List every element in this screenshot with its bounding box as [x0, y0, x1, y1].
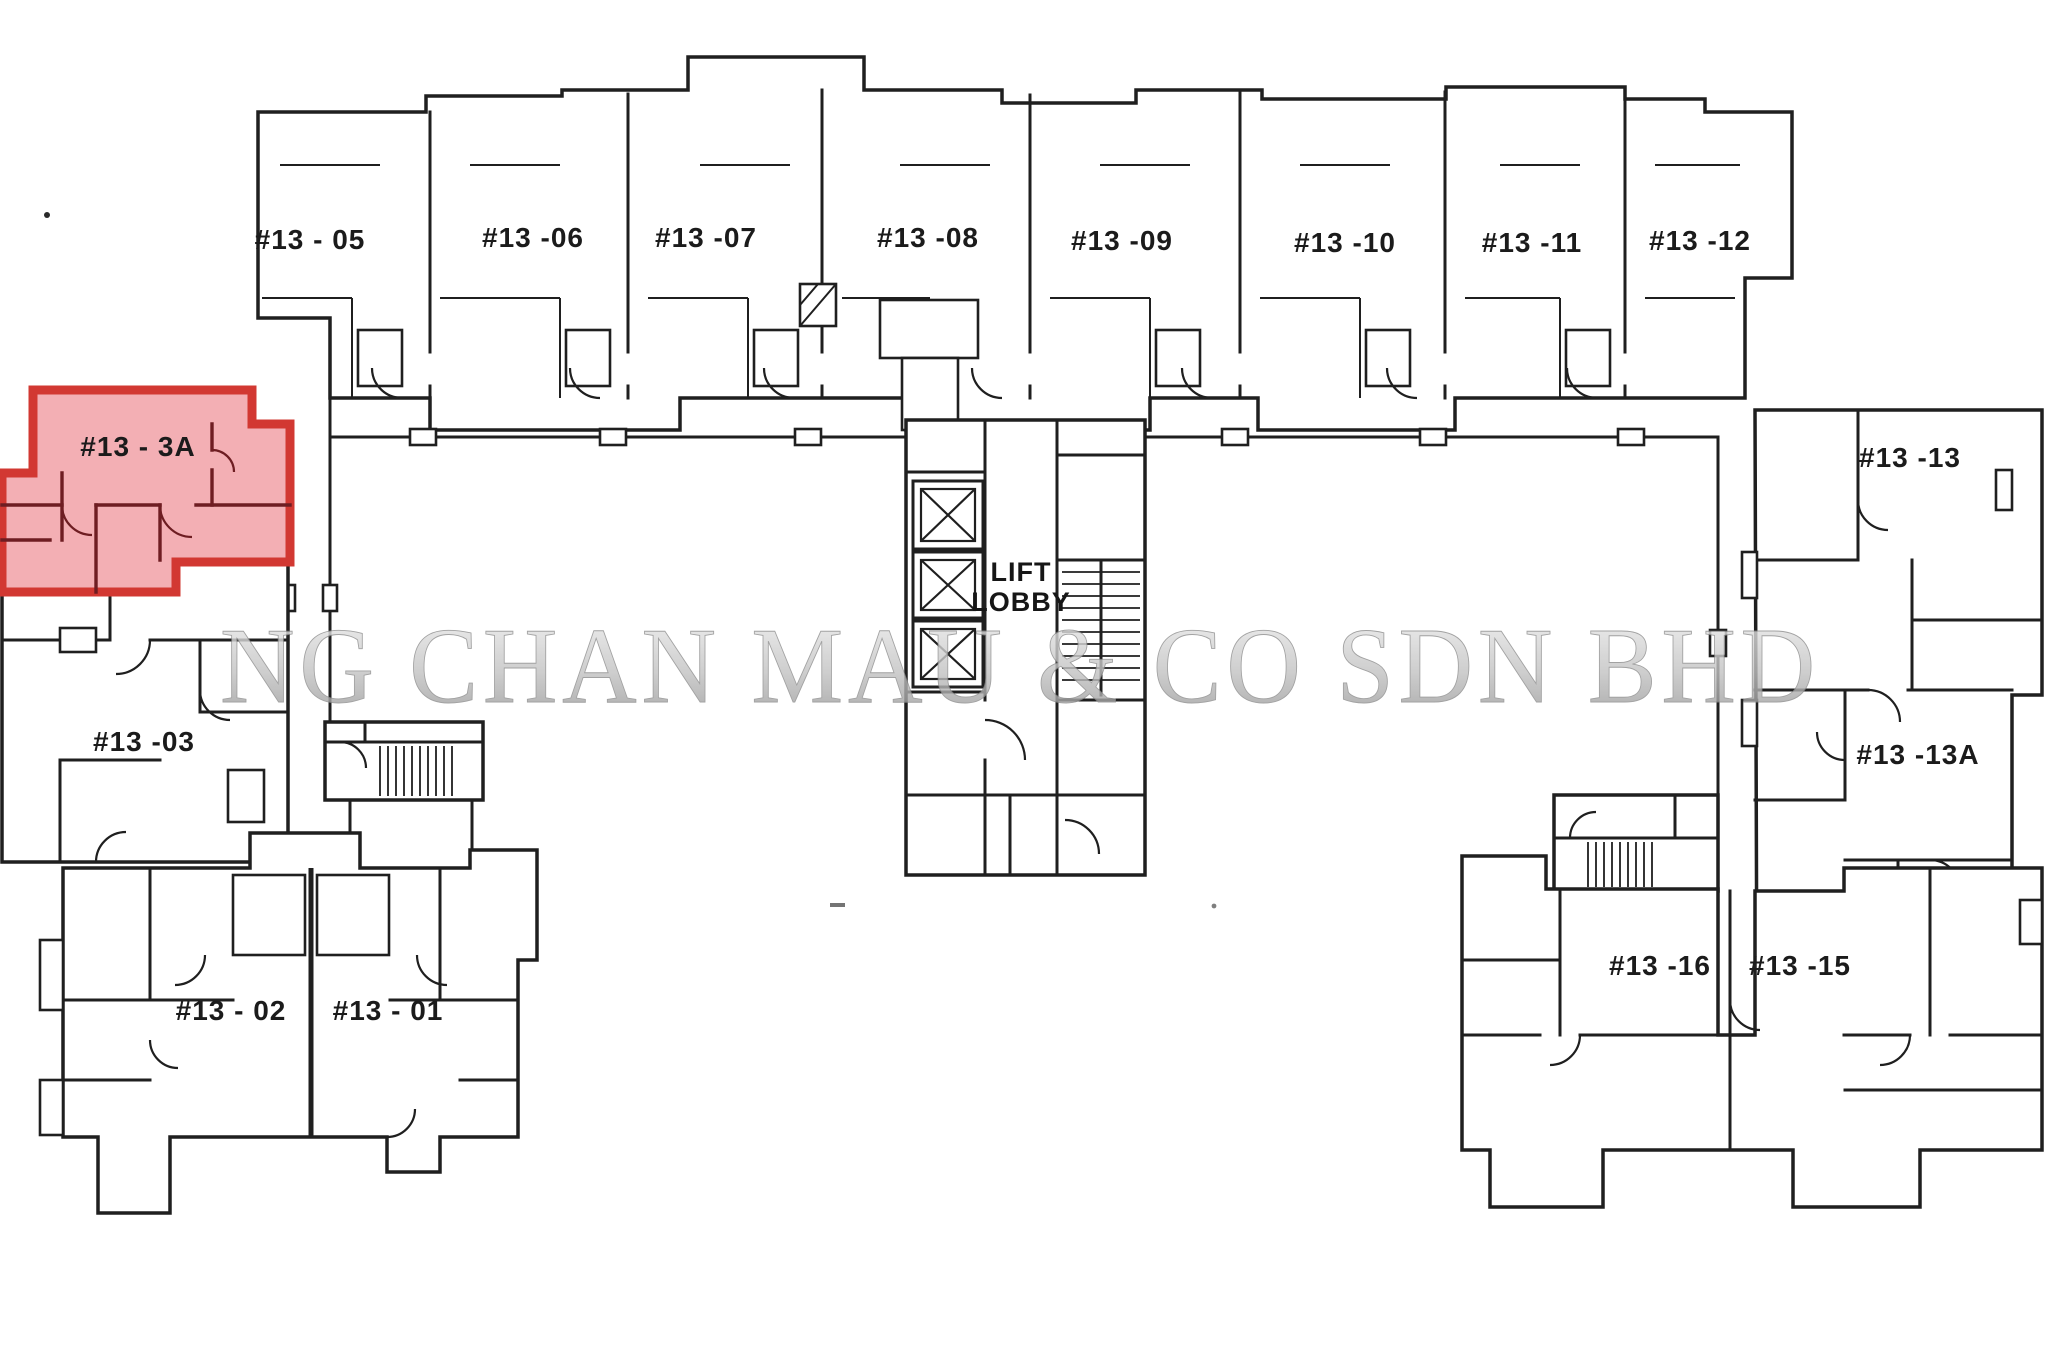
- lift-icon: [913, 481, 983, 549]
- unit-label-13-01: #13 - 01: [333, 995, 444, 1026]
- stairs-icon-right: [1554, 795, 1718, 891]
- units-13-02-13-01-block: [40, 833, 537, 1213]
- unit-label-13-13: #13 -13: [1859, 442, 1961, 473]
- unit-label-13-05: #13 - 05: [255, 224, 366, 255]
- highlighted-unit-13-3A: [2, 390, 290, 592]
- stairs-icon-left: [325, 722, 483, 800]
- unit-label-13-06: #13 -06: [482, 222, 584, 253]
- unit-label-13-07: #13 -07: [655, 222, 757, 253]
- unit-label-13-15: #13 -15: [1749, 950, 1851, 981]
- watermark: NG CHAN MAU & CO SDN BHD: [220, 607, 1820, 726]
- unit-label-13-02: #13 - 02: [176, 995, 287, 1026]
- unit-label-13-3A: #13 - 3A: [80, 431, 195, 462]
- lift-lobby-label-line1: LIFT: [991, 557, 1052, 587]
- unit-label-13-16: #13 -16: [1609, 950, 1711, 981]
- unit-label-13-03: #13 -03: [93, 726, 195, 757]
- unit-label-13-08: #13 -08: [877, 222, 979, 253]
- unit-label-13-12: #13 -12: [1649, 225, 1751, 256]
- shower-box: [800, 284, 836, 326]
- scan-speck: [830, 903, 845, 907]
- scan-speck: [44, 212, 50, 218]
- unit-label-13-10: #13 -10: [1294, 227, 1396, 258]
- floor-plan-page: LIFT LOBBY: [0, 0, 2048, 1351]
- units-13-16-13-15-block: [1462, 856, 2042, 1207]
- unit-label-13-09: #13 -09: [1071, 225, 1173, 256]
- unit-label-13-11: #13 -11: [1482, 227, 1582, 258]
- unit-label-13-13A: #13 -13A: [1856, 739, 1979, 770]
- scan-speck: [1212, 904, 1217, 909]
- floor-plan: LIFT LOBBY: [0, 0, 2048, 1351]
